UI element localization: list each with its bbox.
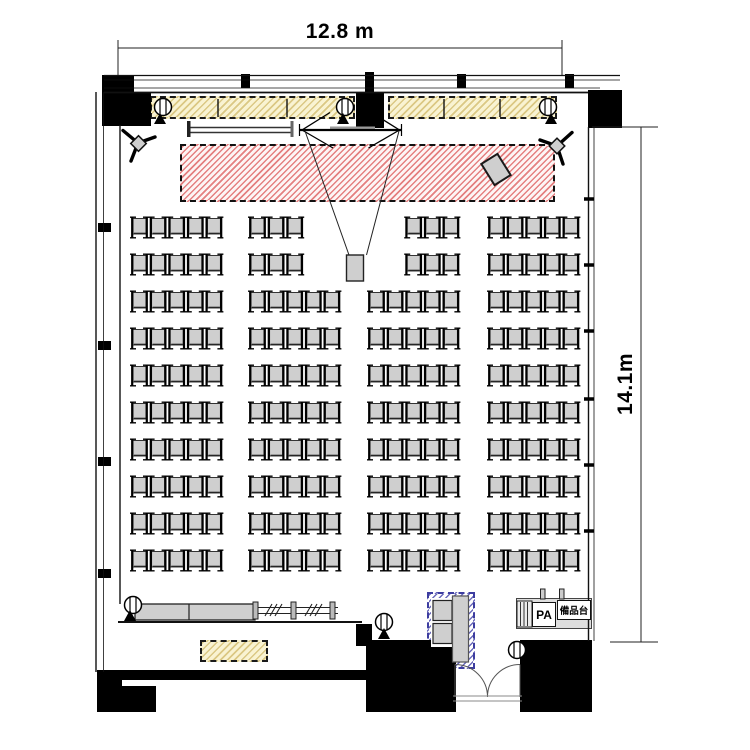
chair	[441, 550, 460, 571]
chair	[367, 439, 386, 460]
chair	[487, 365, 506, 386]
chair	[561, 328, 580, 349]
chair	[524, 476, 543, 497]
chair	[204, 513, 223, 534]
chair	[186, 254, 205, 275]
chair	[487, 254, 506, 275]
chair	[130, 550, 149, 571]
chair	[367, 402, 386, 423]
chair	[506, 550, 525, 571]
chair	[524, 550, 543, 571]
chair	[423, 217, 442, 238]
chair	[386, 550, 405, 571]
chair	[149, 402, 168, 423]
chair	[167, 550, 186, 571]
chair	[186, 476, 205, 497]
chair	[267, 513, 286, 534]
projection-screen	[299, 113, 402, 149]
chair	[404, 291, 423, 312]
chair	[506, 217, 525, 238]
chair	[167, 476, 186, 497]
chair	[130, 365, 149, 386]
chair	[423, 513, 442, 534]
chair	[130, 254, 149, 275]
chair	[367, 476, 386, 497]
chair	[543, 254, 562, 275]
chair	[506, 254, 525, 275]
chair	[248, 402, 267, 423]
chair	[304, 402, 323, 423]
chair	[543, 328, 562, 349]
chair	[524, 439, 543, 460]
chair	[130, 476, 149, 497]
chair	[404, 365, 423, 386]
chair	[367, 328, 386, 349]
chair	[204, 439, 223, 460]
chair	[423, 402, 442, 423]
chair	[524, 328, 543, 349]
chair	[487, 550, 506, 571]
chair	[285, 550, 304, 571]
chair	[423, 365, 442, 386]
chair	[561, 550, 580, 571]
av-rack-units	[431, 596, 469, 662]
chair	[441, 254, 460, 275]
chair	[543, 365, 562, 386]
chair	[524, 513, 543, 534]
chair	[487, 476, 506, 497]
window-wall-top	[104, 76, 620, 93]
chair	[267, 439, 286, 460]
chair	[149, 365, 168, 386]
chair	[285, 291, 304, 312]
chair	[322, 550, 341, 571]
chair	[524, 217, 543, 238]
chair	[367, 550, 386, 571]
chair	[423, 254, 442, 275]
chair	[506, 365, 525, 386]
chair	[524, 365, 543, 386]
chair	[561, 476, 580, 497]
chair	[130, 328, 149, 349]
chair	[322, 365, 341, 386]
chair	[248, 476, 267, 497]
chair	[386, 513, 405, 534]
chair	[367, 291, 386, 312]
counter-table	[135, 604, 255, 620]
chair	[149, 217, 168, 238]
chair	[267, 365, 286, 386]
chair	[304, 291, 323, 312]
chair	[386, 402, 405, 423]
chair	[130, 402, 149, 423]
chair	[204, 550, 223, 571]
chair	[304, 439, 323, 460]
chair	[506, 402, 525, 423]
chair	[543, 439, 562, 460]
chair	[441, 439, 460, 460]
chair	[248, 291, 267, 312]
chair	[130, 217, 149, 238]
chair	[167, 254, 186, 275]
chair	[167, 328, 186, 349]
dimension-depth-label: 14.1m	[614, 353, 638, 415]
chair	[506, 513, 525, 534]
chair	[404, 476, 423, 497]
chair	[386, 365, 405, 386]
chair	[367, 513, 386, 534]
chair	[285, 439, 304, 460]
lectern	[481, 154, 510, 185]
chair	[248, 513, 267, 534]
chair	[149, 513, 168, 534]
chair	[423, 439, 442, 460]
batten-ticks	[218, 99, 500, 117]
chair	[487, 217, 506, 238]
chair	[248, 550, 267, 571]
chair	[267, 328, 286, 349]
chair	[404, 550, 423, 571]
chair	[167, 217, 186, 238]
chair	[285, 476, 304, 497]
chair	[487, 513, 506, 534]
chair	[561, 513, 580, 534]
chair	[322, 476, 341, 497]
chair	[130, 439, 149, 460]
chair	[561, 254, 580, 275]
chair	[304, 328, 323, 349]
chair	[386, 476, 405, 497]
chair	[543, 550, 562, 571]
chair	[248, 254, 267, 275]
chair	[543, 402, 562, 423]
equipment-stand-label: 備品台	[557, 600, 591, 620]
chair	[285, 402, 304, 423]
chair	[304, 365, 323, 386]
chair	[404, 254, 423, 275]
chair	[543, 476, 562, 497]
chair	[267, 217, 286, 238]
chair	[186, 550, 205, 571]
chair	[441, 513, 460, 534]
chair	[506, 439, 525, 460]
chair	[487, 291, 506, 312]
chair	[441, 476, 460, 497]
chair	[506, 328, 525, 349]
chair	[130, 513, 149, 534]
chair	[524, 402, 543, 423]
chair	[285, 328, 304, 349]
chair	[149, 291, 168, 312]
chair	[404, 217, 423, 238]
chair	[130, 291, 149, 312]
chair	[561, 217, 580, 238]
whiteboard	[187, 121, 294, 137]
chair	[186, 328, 205, 349]
chair	[487, 439, 506, 460]
window-wall-left	[96, 92, 120, 672]
chair	[204, 328, 223, 349]
chair	[304, 476, 323, 497]
chair	[404, 513, 423, 534]
chair	[441, 328, 460, 349]
chair	[248, 365, 267, 386]
dimension-width-label: 12.8 m	[280, 20, 400, 44]
chair	[149, 439, 168, 460]
chair	[149, 550, 168, 571]
chair	[487, 402, 506, 423]
chair	[186, 513, 205, 534]
chair	[423, 476, 442, 497]
chair	[267, 254, 286, 275]
chair	[285, 217, 304, 238]
chair	[186, 217, 205, 238]
chair	[248, 328, 267, 349]
chair	[322, 513, 341, 534]
chair	[506, 291, 525, 312]
stacked-tables	[253, 602, 338, 619]
chair	[543, 513, 562, 534]
chair	[561, 439, 580, 460]
chair	[441, 217, 460, 238]
chair	[322, 291, 341, 312]
chair	[561, 402, 580, 423]
chair	[149, 476, 168, 497]
chair	[204, 254, 223, 275]
stage-light-icon	[123, 131, 155, 162]
chair	[524, 291, 543, 312]
chair	[561, 365, 580, 386]
chair	[167, 402, 186, 423]
chair	[404, 439, 423, 460]
chair	[267, 402, 286, 423]
chair	[543, 217, 562, 238]
chair	[186, 291, 205, 312]
chair	[204, 217, 223, 238]
chair	[524, 254, 543, 275]
entrance-door	[453, 665, 522, 702]
chair	[386, 439, 405, 460]
chair	[367, 365, 386, 386]
stage-light-icon	[540, 133, 572, 165]
chair	[248, 439, 267, 460]
chair	[204, 291, 223, 312]
floor-plan: 12.8 m 14.1m PA 備品台	[0, 0, 750, 750]
chair	[386, 328, 405, 349]
chair	[561, 291, 580, 312]
chair	[267, 476, 286, 497]
chair	[404, 328, 423, 349]
chair	[167, 513, 186, 534]
chair	[304, 550, 323, 571]
chair	[506, 476, 525, 497]
chair	[322, 328, 341, 349]
chair	[167, 365, 186, 386]
chair	[441, 402, 460, 423]
chair	[167, 291, 186, 312]
chair	[423, 328, 442, 349]
chair	[186, 439, 205, 460]
chair	[304, 513, 323, 534]
chair	[204, 476, 223, 497]
chair	[285, 365, 304, 386]
pa-label: PA	[532, 602, 556, 627]
chair	[322, 439, 341, 460]
window-wall-right	[584, 127, 594, 641]
chair	[285, 513, 304, 534]
chair	[423, 291, 442, 312]
chair	[149, 328, 168, 349]
chair	[285, 254, 304, 275]
dimension-top	[118, 40, 562, 76]
chair	[167, 439, 186, 460]
chair	[404, 402, 423, 423]
chair	[204, 402, 223, 423]
chair	[186, 402, 205, 423]
chair	[423, 550, 442, 571]
chair	[487, 328, 506, 349]
chair	[248, 217, 267, 238]
chair	[543, 291, 562, 312]
projection-cone	[305, 131, 399, 255]
chair	[386, 291, 405, 312]
chair	[149, 254, 168, 275]
chair	[267, 291, 286, 312]
chair	[322, 402, 341, 423]
chair	[441, 365, 460, 386]
ceiling-light-icon	[154, 99, 557, 125]
projector	[347, 255, 364, 281]
chair	[204, 365, 223, 386]
chair	[186, 365, 205, 386]
chair	[441, 291, 460, 312]
chair	[267, 550, 286, 571]
